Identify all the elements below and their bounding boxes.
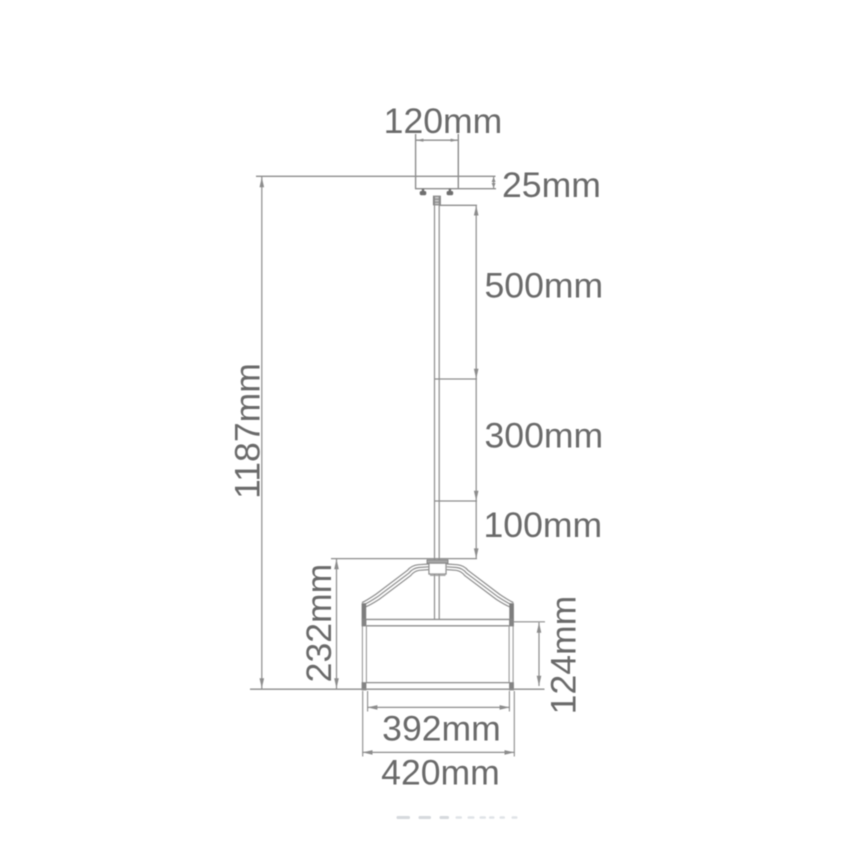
svg-text:300mm: 300mm (485, 415, 604, 455)
svg-text:232mm: 232mm (299, 564, 339, 683)
svg-text:500mm: 500mm (485, 266, 604, 306)
svg-text:100mm: 100mm (484, 505, 603, 545)
svg-text:120mm: 120mm (384, 101, 503, 141)
svg-text:392mm: 392mm (382, 709, 501, 749)
svg-text:124mm: 124mm (544, 596, 584, 715)
svg-text:420mm: 420mm (381, 753, 500, 793)
svg-text:1187mm: 1187mm (228, 363, 268, 499)
svg-text:25mm: 25mm (502, 165, 601, 205)
